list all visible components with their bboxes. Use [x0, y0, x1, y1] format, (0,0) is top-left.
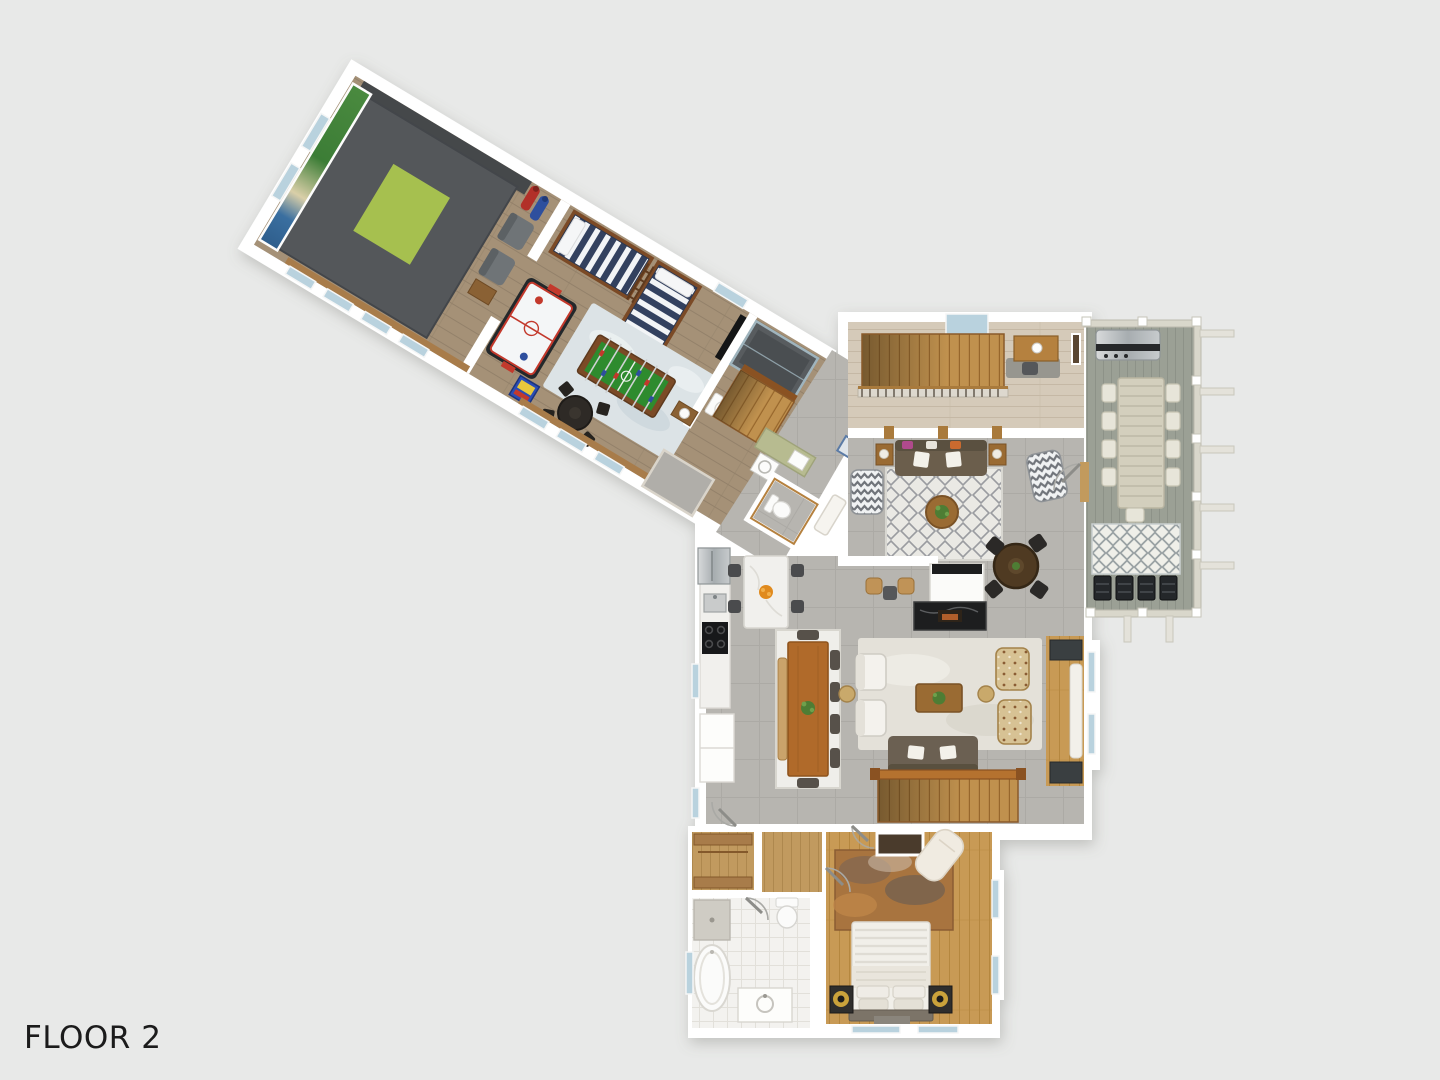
loft-staircase	[858, 334, 1008, 397]
staircase-railing	[872, 770, 1024, 779]
foot-bench	[874, 1016, 910, 1024]
window	[918, 1026, 958, 1033]
upper-sofa	[895, 440, 987, 476]
lower-sofa	[888, 736, 978, 774]
cooktop	[702, 622, 728, 654]
lower-coffee-table	[916, 684, 962, 712]
deck-door-threshold	[1080, 462, 1089, 502]
bar-stool	[898, 578, 914, 594]
window	[852, 1026, 900, 1033]
island-stool	[791, 564, 804, 577]
window	[1088, 714, 1095, 754]
island-stool	[791, 600, 804, 613]
coffee-mug	[1032, 343, 1042, 353]
island-stool	[728, 600, 741, 613]
closet-shelf	[694, 834, 752, 845]
window	[692, 664, 699, 698]
plant-centerpiece	[801, 701, 815, 715]
floor-label: FLOOR 2	[24, 1020, 161, 1056]
kitchen-sink	[704, 594, 726, 612]
desk-nook	[1006, 336, 1060, 378]
window	[686, 952, 693, 994]
floor-plan-render	[0, 0, 1440, 1080]
window	[1088, 652, 1095, 692]
bedroom-suite	[686, 825, 999, 1033]
round-side-table	[839, 686, 855, 702]
bar-stool	[866, 578, 882, 594]
refrigerator	[698, 548, 730, 584]
grill	[1096, 330, 1160, 360]
closet-shelf	[694, 877, 752, 888]
dining-bench	[778, 658, 787, 760]
hall-floor	[762, 832, 822, 892]
fruit-bowl	[759, 585, 773, 599]
ottoman-stool	[883, 586, 897, 600]
wall-art	[1072, 334, 1080, 364]
fireplace	[914, 602, 986, 630]
window	[992, 956, 999, 994]
island-stool	[728, 564, 741, 577]
chevron-armchair-left	[851, 470, 883, 514]
bathroom-vanity	[738, 988, 792, 1022]
desk-chair	[1022, 362, 1038, 375]
freestanding-tub	[694, 945, 730, 1011]
window	[992, 880, 999, 918]
bathroom-toilet	[776, 898, 798, 928]
closet-niche	[877, 833, 923, 855]
bed	[849, 922, 933, 1021]
round-coffee-table	[926, 496, 958, 528]
floor-plan-page: FLOOR 2	[0, 0, 1440, 1080]
dining-area	[776, 630, 840, 788]
outdoor-rug	[1092, 524, 1180, 574]
window	[692, 788, 699, 818]
main-staircase	[870, 768, 1026, 822]
outdoor-dining-table	[1118, 378, 1164, 508]
round-side-table	[978, 686, 994, 702]
bench-console	[1050, 762, 1082, 783]
angled-wing	[241, 62, 832, 536]
deck	[1080, 317, 1234, 642]
tv	[932, 564, 982, 574]
stair-railing	[858, 386, 1008, 397]
master-bedroom	[830, 825, 968, 1024]
bench-console	[1050, 640, 1082, 660]
bench-cushion	[1070, 664, 1082, 758]
